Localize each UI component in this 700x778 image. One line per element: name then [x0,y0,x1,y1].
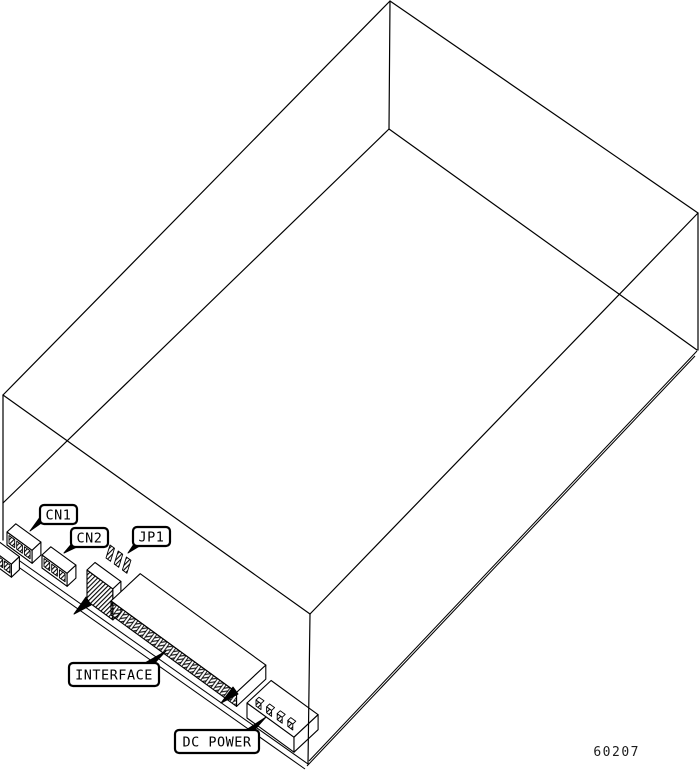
callout-interface-label: INTERFACE [75,668,153,684]
figure-part-number: 60207 [593,745,640,760]
jp1-pin-1 [106,545,115,561]
drive-diagram-svg: CN1 CN2 JP1 INTERFACE DC POWER 60207 [0,0,700,778]
callout-cn2: CN2 [64,528,108,553]
rear-vertical-edge [389,1,390,129]
callout-cn1-label: CN1 [46,508,72,524]
bottom-right-seam-inner [307,356,695,766]
figure-canvas: CN1 CN2 JP1 INTERFACE DC POWER 60207 [0,0,700,778]
chassis-wireframe [0,1,698,769]
top-right-edge [390,1,698,213]
bottom-rear-left-edge [3,129,389,503]
callout-jp1-label: JP1 [139,530,165,546]
callout-jp1: JP1 [128,527,170,553]
jp1-pin-2 [114,551,123,567]
top-front-right-edge [310,213,698,614]
callout-interface: INTERFACE [69,651,166,686]
front-vertical-edge [308,614,310,764]
bottom-rear-right-edge [389,129,697,350]
top-left-edge [3,1,390,395]
callout-cn1: CN1 [30,505,77,531]
callout-cn2-label: CN2 [77,531,103,547]
bottom-right-seam-outer [309,351,697,761]
jp1-pin-3 [122,557,130,573]
callout-dc-power-label: DC POWER [182,735,251,751]
